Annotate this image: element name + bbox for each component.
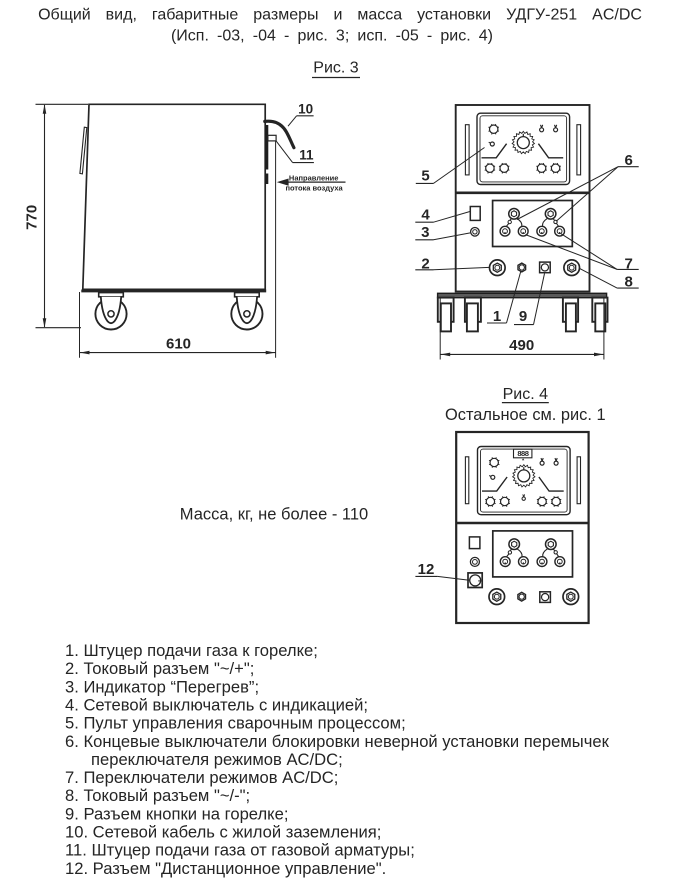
svg-text:Масса, кг, не более - 110: Масса, кг, не более - 110 <box>180 506 368 524</box>
svg-text:4: 4 <box>421 206 430 223</box>
svg-text:490: 490 <box>509 337 534 354</box>
svg-text:(Исп. -03, -04 - рис. 3; исп.: (Исп. -03, -04 - рис. 3; исп. -05 - рис.… <box>171 28 493 45</box>
svg-text:Рис. 3: Рис. 3 <box>313 60 359 77</box>
svg-text:3: 3 <box>421 224 429 241</box>
svg-text:потока воздуха: потока воздуха <box>285 183 343 192</box>
svg-text:Направление: Направление <box>289 173 339 182</box>
svg-text:4. Сетевой выключатель с индик: 4. Сетевой выключатель с индикацией; <box>65 696 368 715</box>
svg-text:12: 12 <box>418 561 435 578</box>
svg-text:3. Индикатор “Перегрев”;: 3. Индикатор “Перегрев”; <box>65 677 259 696</box>
svg-text:9. Разъем кнопки на горелке;: 9. Разъем кнопки на горелке; <box>65 804 288 823</box>
svg-text:888: 888 <box>517 449 528 458</box>
svg-text:10. Сетевой кабель с жилой заз: 10. Сетевой кабель с жилой заземления; <box>65 823 381 842</box>
svg-text:1. Штуцер подачи газа к горелк: 1. Штуцер подачи газа к горелке; <box>65 641 318 660</box>
svg-text:11: 11 <box>299 148 314 163</box>
svg-text:переключателя режимов AC/DC;: переключателя режимов AC/DC; <box>91 750 343 769</box>
svg-text:5: 5 <box>421 168 429 185</box>
svg-text:610: 610 <box>166 335 191 352</box>
svg-text:11. Штуцер подачи газа от газо: 11. Штуцер подачи газа от газовой армату… <box>65 841 415 860</box>
svg-text:5. Пульт управления сварочным: 5. Пульт управления сварочным процессом; <box>65 714 406 733</box>
svg-text:Рис. 4: Рис. 4 <box>503 386 549 403</box>
svg-text:9: 9 <box>519 308 527 325</box>
svg-text:7. Переключатели режимов AC/DC: 7. Переключатели режимов AC/DC; <box>65 768 338 787</box>
svg-text:2. Токовый разъем "~/+";: 2. Токовый разъем "~/+"; <box>65 659 254 678</box>
svg-text:6. Концевые выключатели блокир: 6. Концевые выключатели блокировки невер… <box>65 732 610 751</box>
svg-text:Общий вид, габаритные размеры: Общий вид, габаритные размеры и масса ус… <box>38 7 642 24</box>
svg-text:Остальное см. рис. 1: Остальное см. рис. 1 <box>445 406 606 424</box>
svg-text:770: 770 <box>24 205 41 230</box>
svg-text:12. Разъем "Дистанционное упра: 12. Разъем "Дистанционное управление". <box>65 859 386 878</box>
svg-text:8. Токовый разъем "~/-";: 8. Токовый разъем "~/-"; <box>65 786 250 805</box>
svg-text:10: 10 <box>298 101 313 116</box>
